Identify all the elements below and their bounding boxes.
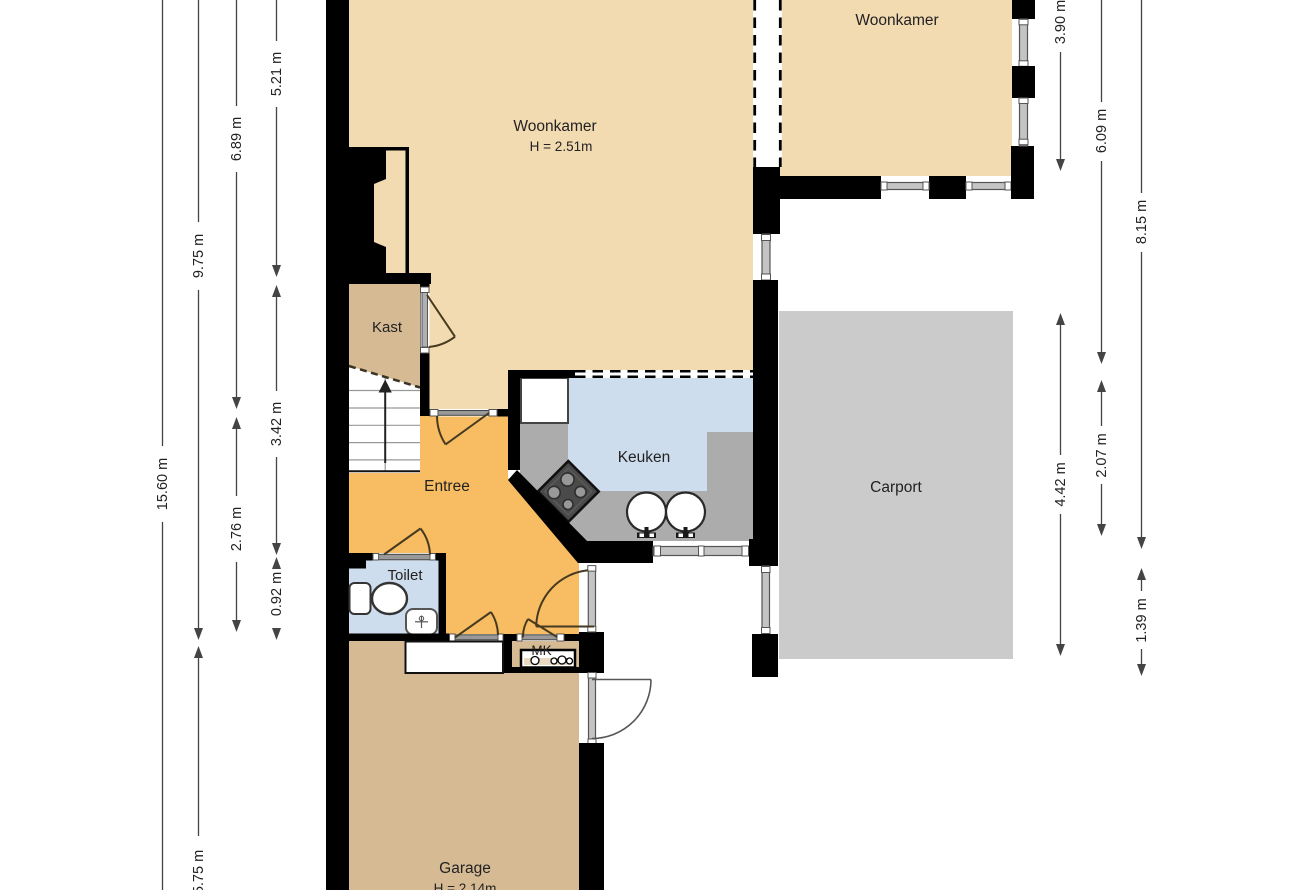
svg-text:H = 2.14m: H = 2.14m — [434, 881, 497, 890]
svg-text:5.75 m: 5.75 m — [191, 850, 207, 890]
svg-text:3.90 m: 3.90 m — [1053, 0, 1069, 44]
svg-text:1.39 m: 1.39 m — [1134, 598, 1150, 642]
svg-text:Keuken: Keuken — [618, 449, 671, 466]
svg-text:H = 2.51m: H = 2.51m — [530, 139, 593, 154]
svg-text:Kast: Kast — [372, 319, 403, 336]
svg-text:0.92 m: 0.92 m — [269, 572, 285, 616]
svg-text:MK: MK — [531, 643, 551, 658]
svg-text:Carport: Carport — [870, 479, 922, 496]
svg-text:6.09 m: 6.09 m — [1094, 109, 1110, 153]
svg-text:2.76 m: 2.76 m — [229, 507, 245, 551]
svg-text:Toilet: Toilet — [387, 567, 423, 584]
svg-text:9.75 m: 9.75 m — [191, 234, 207, 278]
svg-text:6.89 m: 6.89 m — [229, 117, 245, 161]
svg-text:Entree: Entree — [424, 478, 470, 495]
svg-text:5.21 m: 5.21 m — [269, 52, 285, 96]
svg-text:Woonkamer: Woonkamer — [855, 12, 938, 29]
svg-text:Garage: Garage — [439, 860, 491, 877]
svg-text:15.60 m: 15.60 m — [155, 458, 171, 510]
svg-text:3.42 m: 3.42 m — [269, 402, 285, 446]
svg-text:4.42 m: 4.42 m — [1053, 462, 1069, 506]
svg-text:2.07 m: 2.07 m — [1094, 433, 1110, 477]
svg-text:8.15 m: 8.15 m — [1134, 200, 1150, 244]
svg-text:Woonkamer: Woonkamer — [513, 118, 596, 135]
